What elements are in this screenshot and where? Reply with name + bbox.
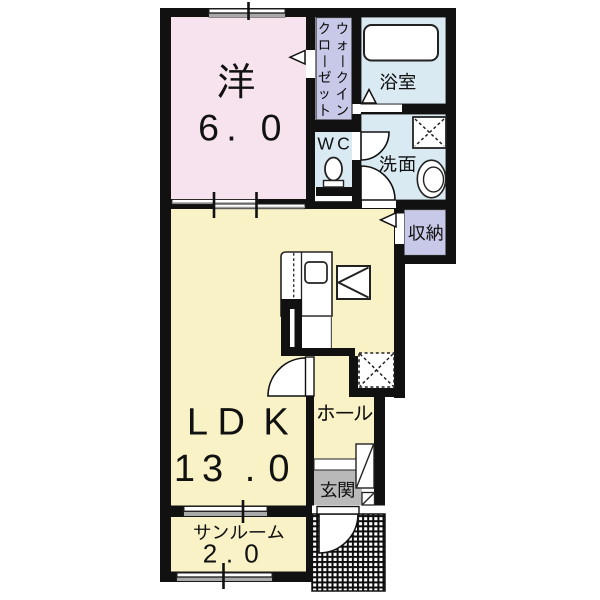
svg-text:L: L: [187, 401, 208, 443]
svg-text:0: 0: [268, 448, 289, 490]
svg-text:K: K: [263, 401, 288, 443]
svg-text:C: C: [337, 134, 350, 154]
svg-text:.: .: [226, 107, 236, 149]
svg-text:.: .: [245, 448, 256, 490]
svg-text:.: .: [226, 539, 233, 569]
svg-text:0: 0: [261, 107, 282, 149]
svg-text:D: D: [217, 401, 244, 443]
svg-text:6: 6: [198, 107, 219, 149]
svg-text:1: 1: [174, 448, 195, 490]
svg-text:3: 3: [202, 448, 223, 490]
svg-text:2: 2: [203, 539, 217, 569]
svg-text:0: 0: [244, 539, 258, 569]
svg-text:W: W: [317, 134, 334, 154]
